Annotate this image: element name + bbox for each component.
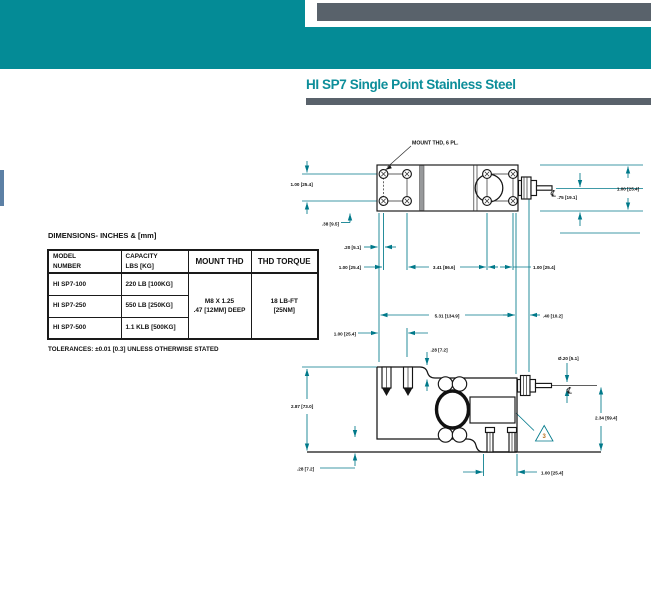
side-view: ℄ 3 5.31 [134.9] .40 [10.2] 1.00 [25.4] …: [291, 313, 618, 476]
header-teal-band: [0, 27, 651, 69]
centerline-symbol: ℄: [566, 386, 572, 396]
body-outline: [377, 165, 518, 211]
dim-label: 1.00 [25.4]: [339, 265, 362, 270]
side-view-body: ℄ 3: [307, 367, 601, 452]
connector-side-view: [518, 376, 598, 396]
dim-label: 5.31 [134.9]: [435, 313, 460, 318]
technical-drawing: ℄ MOUNT THD, 6 PL. 1.00 [25.4] .38 [9.5]…: [288, 125, 651, 490]
col-header-capacity: CAPACITY LBS [KG]: [121, 250, 188, 273]
dim-label: 3.41 [86.6]: [433, 265, 456, 270]
gauge-ring: [437, 391, 469, 428]
flexure-profile: [437, 377, 469, 442]
dim-label: .75 [19.1]: [557, 195, 577, 200]
dim-label: 1.00 [25.4]: [334, 332, 357, 337]
connector-top-view: [519, 177, 553, 199]
cell-model: HI SP7-500: [48, 317, 121, 339]
mount-thd-callout: MOUNT THD, 6 PL.: [412, 141, 459, 147]
dim-label: .20 [5.1]: [344, 245, 362, 250]
dimensions-heading: DIMENSIONS- INCHES & [mm]: [48, 231, 156, 240]
header-gray-bar: [317, 3, 651, 21]
dim-label: 2.87 [73.0]: [291, 404, 314, 409]
cell-mount-thd: M8 X 1.25 .47 [12MM] DEEP: [188, 273, 251, 339]
dim-label: .28 [7.2]: [431, 348, 449, 353]
mount-studs-bottom: [486, 428, 517, 453]
page-edge-tab: [0, 170, 4, 206]
table-row: HI SP7-100 220 LB [100KG] M8 X 1.25 .47 …: [48, 273, 318, 295]
dim-label: .38 [9.5]: [322, 222, 340, 227]
flag-number: 3: [543, 434, 547, 440]
tolerance-note: TOLERANCES: ±0.01 [0.3] UNLESS OTHERWISE…: [48, 346, 219, 353]
dim-label: 2.34 [59.4]: [595, 416, 618, 421]
dim-label: 1.00 [25.4]: [617, 187, 640, 192]
cell-capacity: 220 LB [100KG]: [121, 273, 188, 295]
table-header-row: MODEL NUMBER CAPACITY LBS [KG] MOUNT THD…: [48, 250, 318, 273]
cell-capacity: 1.1 KLB [500KG]: [121, 317, 188, 339]
dim-label: 1.00 [25.4]: [291, 182, 314, 187]
mount-studs-top: [382, 367, 413, 396]
dim-label: .40 [10.2]: [543, 313, 563, 318]
col-header-mount-thd: MOUNT THD: [188, 250, 251, 273]
cell-capacity: 550 LB [250KG]: [121, 295, 188, 317]
cell-model: HI SP7-250: [48, 295, 121, 317]
title-underline-bar: [306, 98, 651, 105]
col-header-model: MODEL NUMBER: [48, 250, 121, 273]
dim-label: .28 [7.2]: [297, 466, 315, 471]
dim-label: 1.00 [25.4]: [533, 265, 556, 270]
spec-table: MODEL NUMBER CAPACITY LBS [KG] MOUNT THD…: [47, 249, 319, 340]
dim-label: Ø.20 [5.1]: [558, 356, 579, 361]
top-view: ℄ MOUNT THD, 6 PL. 1.00 [25.4] .38 [9.5]…: [291, 141, 644, 375]
cell-model: HI SP7-100: [48, 273, 121, 295]
dim-label: 1.00 [25.4]: [541, 471, 564, 476]
page-title: HI SP7 Single Point Stainless Steel: [306, 77, 516, 92]
seam-band: [420, 166, 425, 211]
centerline-symbol: ℄: [550, 189, 556, 199]
label-plate: [470, 397, 515, 423]
